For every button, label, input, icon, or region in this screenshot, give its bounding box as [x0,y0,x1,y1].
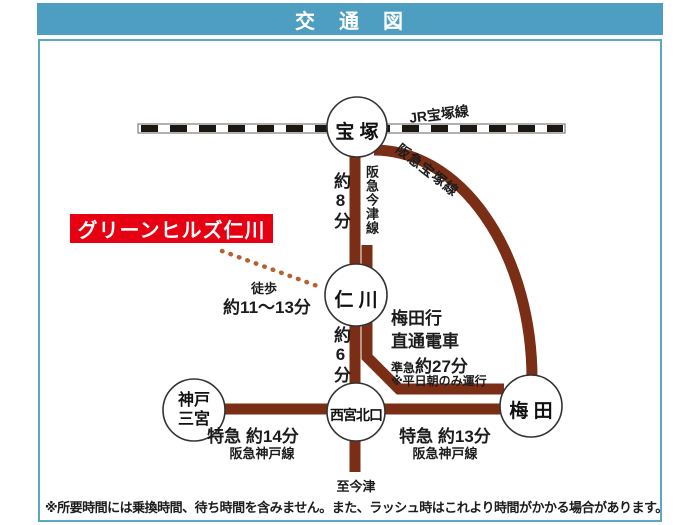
to-imazu-label: 至今津 [326,476,386,495]
hankyu-kobe-line-label-west: 阪急神戸線 [214,443,310,462]
rail-map-graphic [0,0,700,525]
walk-time-label: 約11～13分 [219,293,315,318]
hankyu-imazu-line-label: 阪急今津線 [362,165,381,235]
station-label-takarazuka: 宝 塚 [327,117,387,144]
umeda-bound-label: 梅田行 [391,304,442,329]
station-label-nishinomiya-kitaguchi: 西宮北口 [323,405,389,425]
footer-disclaimer: ※所要時間には乗換時間、待ち時間を含みません。また、ラッシュ時はこれより時間がか… [45,497,668,516]
property-name-box: グリーンヒルズ仁川 [70,214,273,243]
station-label-nigawa: 仁 川 [326,285,386,312]
weekday-only-note: ※平日朝のみ運行 [391,372,487,389]
direct-train-label: 直通電車 [391,327,459,352]
access-map-page: 交 通 図 宝 塚 仁 川 西宮北口 神戸 三宮 梅 田 JR宝塚 [0,0,700,525]
hankyu-kobe-line-label-east: 阪急神戸線 [397,443,493,462]
time-nigawa-nishikita: 約6分 [328,326,353,385]
property-name-label: グリーンヒルズ仁川 [78,214,266,243]
station-label-umeda: 梅 田 [501,396,561,423]
kobe-sannomiya-line1: 神戸 [164,391,224,410]
time-takarazuka-nigawa: 約8分 [328,172,353,231]
